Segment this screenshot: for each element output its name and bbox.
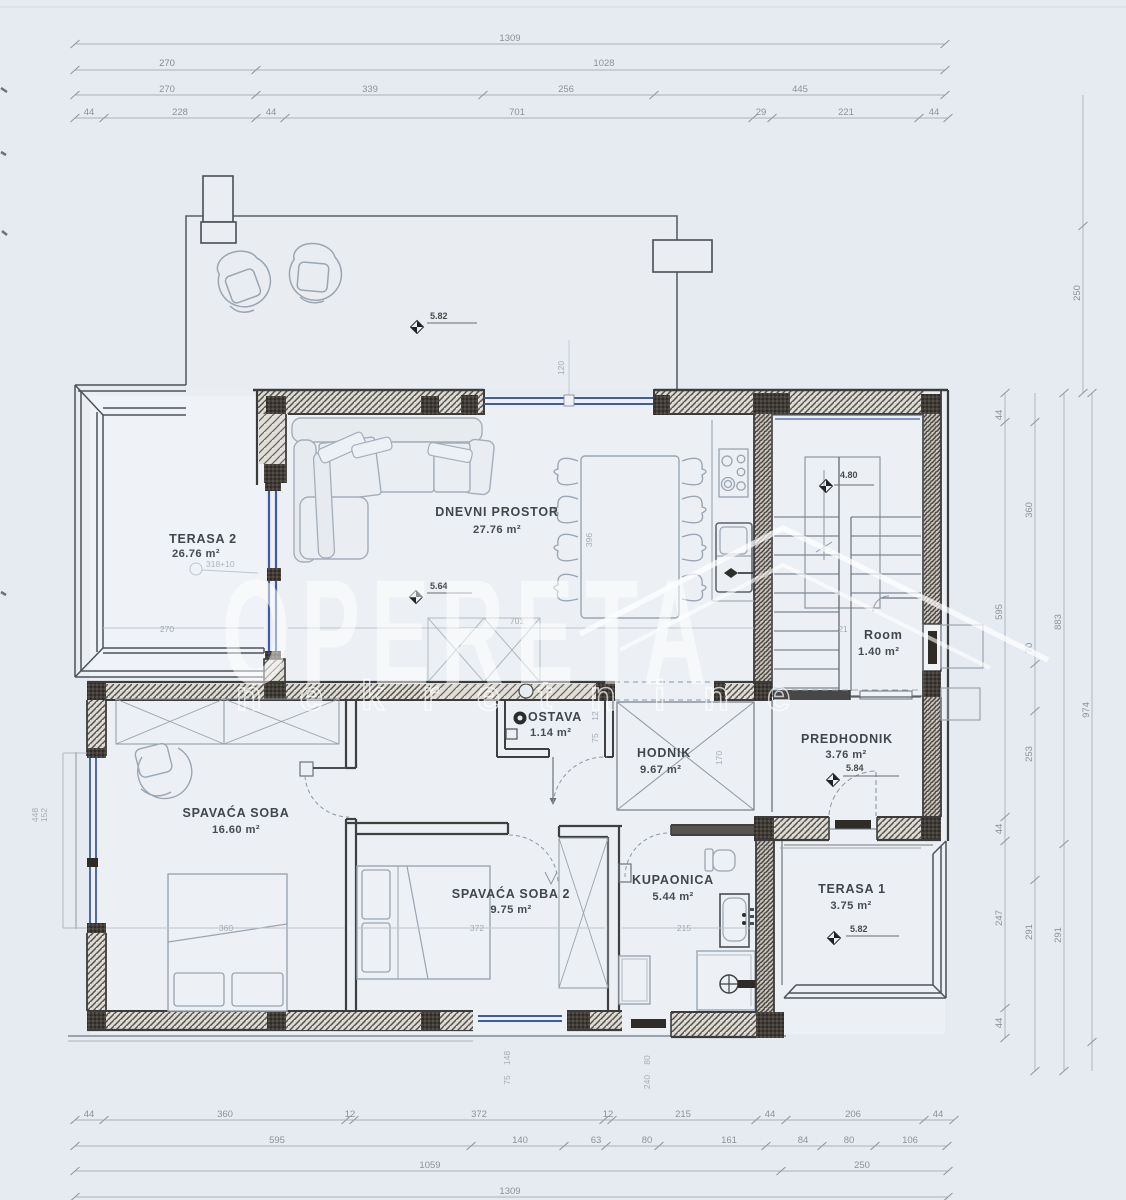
svg-text:1309: 1309 <box>499 1186 520 1197</box>
svg-text:1028: 1028 <box>593 58 614 69</box>
svg-text:5.84: 5.84 <box>846 763 864 773</box>
svg-text:228: 228 <box>172 107 188 118</box>
svg-text:161: 161 <box>721 1135 737 1146</box>
svg-text:12: 12 <box>345 1109 356 1120</box>
svg-text:247: 247 <box>994 910 1005 926</box>
svg-text:Room: Room <box>864 628 903 642</box>
svg-text:253: 253 <box>1024 746 1035 762</box>
svg-text:152: 152 <box>39 808 49 822</box>
svg-text:TERASA 2: TERASA 2 <box>169 532 237 546</box>
svg-text:9.75 m²: 9.75 m² <box>490 904 531 916</box>
svg-text:372: 372 <box>470 923 484 933</box>
svg-text:21: 21 <box>838 624 848 634</box>
svg-text:256: 256 <box>558 84 574 95</box>
svg-text:106: 106 <box>902 1135 918 1146</box>
svg-text:44: 44 <box>84 1109 95 1120</box>
svg-text:44: 44 <box>994 1018 1005 1029</box>
svg-text:44: 44 <box>929 107 940 118</box>
svg-text:206: 206 <box>845 1109 861 1120</box>
svg-text:5.82: 5.82 <box>850 924 868 934</box>
svg-text:44: 44 <box>994 824 1005 835</box>
svg-text:701: 701 <box>509 107 525 118</box>
svg-text:PREDHODNIK: PREDHODNIK <box>801 732 893 746</box>
svg-text:595: 595 <box>994 604 1005 620</box>
svg-text:75: 75 <box>502 1075 512 1085</box>
svg-text:1.14 m²: 1.14 m² <box>530 727 571 739</box>
svg-text:250: 250 <box>1072 285 1083 301</box>
svg-text:80: 80 <box>642 1055 652 1065</box>
svg-text:595: 595 <box>269 1135 285 1146</box>
svg-text:396: 396 <box>584 533 594 547</box>
svg-text:270: 270 <box>159 84 175 95</box>
svg-text:80: 80 <box>642 1135 653 1146</box>
svg-text:240: 240 <box>642 1075 652 1089</box>
svg-text:215: 215 <box>675 1109 691 1120</box>
svg-text:4.80: 4.80 <box>840 470 858 480</box>
svg-text:nekretnine: nekretnine <box>236 672 828 719</box>
svg-text:44: 44 <box>765 1109 776 1120</box>
svg-text:3.75 m²: 3.75 m² <box>830 900 871 912</box>
svg-text:215: 215 <box>677 923 691 933</box>
svg-text:SPAVAĆA SOBA 2: SPAVAĆA SOBA 2 <box>452 886 571 901</box>
svg-text:360: 360 <box>219 923 233 933</box>
svg-text:360: 360 <box>217 1109 233 1120</box>
svg-text:360: 360 <box>1024 502 1035 518</box>
svg-text:291: 291 <box>1053 927 1064 943</box>
svg-text:170: 170 <box>714 751 724 765</box>
svg-text:29: 29 <box>756 107 767 118</box>
svg-text:80: 80 <box>844 1135 855 1146</box>
svg-text:5.82: 5.82 <box>430 311 448 321</box>
svg-text:5.44 m²: 5.44 m² <box>652 891 693 903</box>
svg-text:250: 250 <box>854 1160 870 1171</box>
svg-text:372: 372 <box>471 1109 487 1120</box>
svg-text:TERASA 1: TERASA 1 <box>818 882 886 896</box>
svg-text:12: 12 <box>603 1109 614 1120</box>
svg-text:DNEVNI PROSTOR: DNEVNI PROSTOR <box>435 505 559 519</box>
svg-text:84: 84 <box>798 1135 809 1146</box>
svg-text:SPAVAĆA SOBA: SPAVAĆA SOBA <box>182 805 289 820</box>
svg-text:140: 140 <box>512 1135 528 1146</box>
svg-text:44: 44 <box>266 107 277 118</box>
svg-text:270: 270 <box>159 58 175 69</box>
svg-text:883: 883 <box>1053 614 1064 630</box>
svg-text:270: 270 <box>160 624 174 634</box>
svg-text:16.60 m²: 16.60 m² <box>212 824 260 836</box>
svg-text:3.76 m²: 3.76 m² <box>825 749 866 761</box>
svg-text:339: 339 <box>362 84 378 95</box>
svg-text:974: 974 <box>1081 702 1092 718</box>
svg-text:221: 221 <box>838 107 854 118</box>
svg-text:44: 44 <box>933 1109 944 1120</box>
svg-text:1059: 1059 <box>419 1160 440 1171</box>
svg-text:44: 44 <box>84 107 95 118</box>
svg-text:1.40 m²: 1.40 m² <box>858 646 899 658</box>
svg-text:9.67 m²: 9.67 m² <box>640 764 681 776</box>
svg-text:KUPAONICA: KUPAONICA <box>632 873 714 887</box>
svg-text:148: 148 <box>502 1051 512 1065</box>
svg-text:HODNIK: HODNIK <box>637 746 691 760</box>
svg-text:63: 63 <box>591 1135 602 1146</box>
svg-text:75: 75 <box>590 733 600 743</box>
svg-text:291: 291 <box>1024 924 1035 940</box>
svg-text:445: 445 <box>792 84 808 95</box>
svg-text:120: 120 <box>556 361 566 375</box>
svg-text:27.76 m²: 27.76 m² <box>473 524 521 536</box>
svg-text:1309: 1309 <box>499 33 520 44</box>
svg-text:44: 44 <box>994 410 1005 421</box>
